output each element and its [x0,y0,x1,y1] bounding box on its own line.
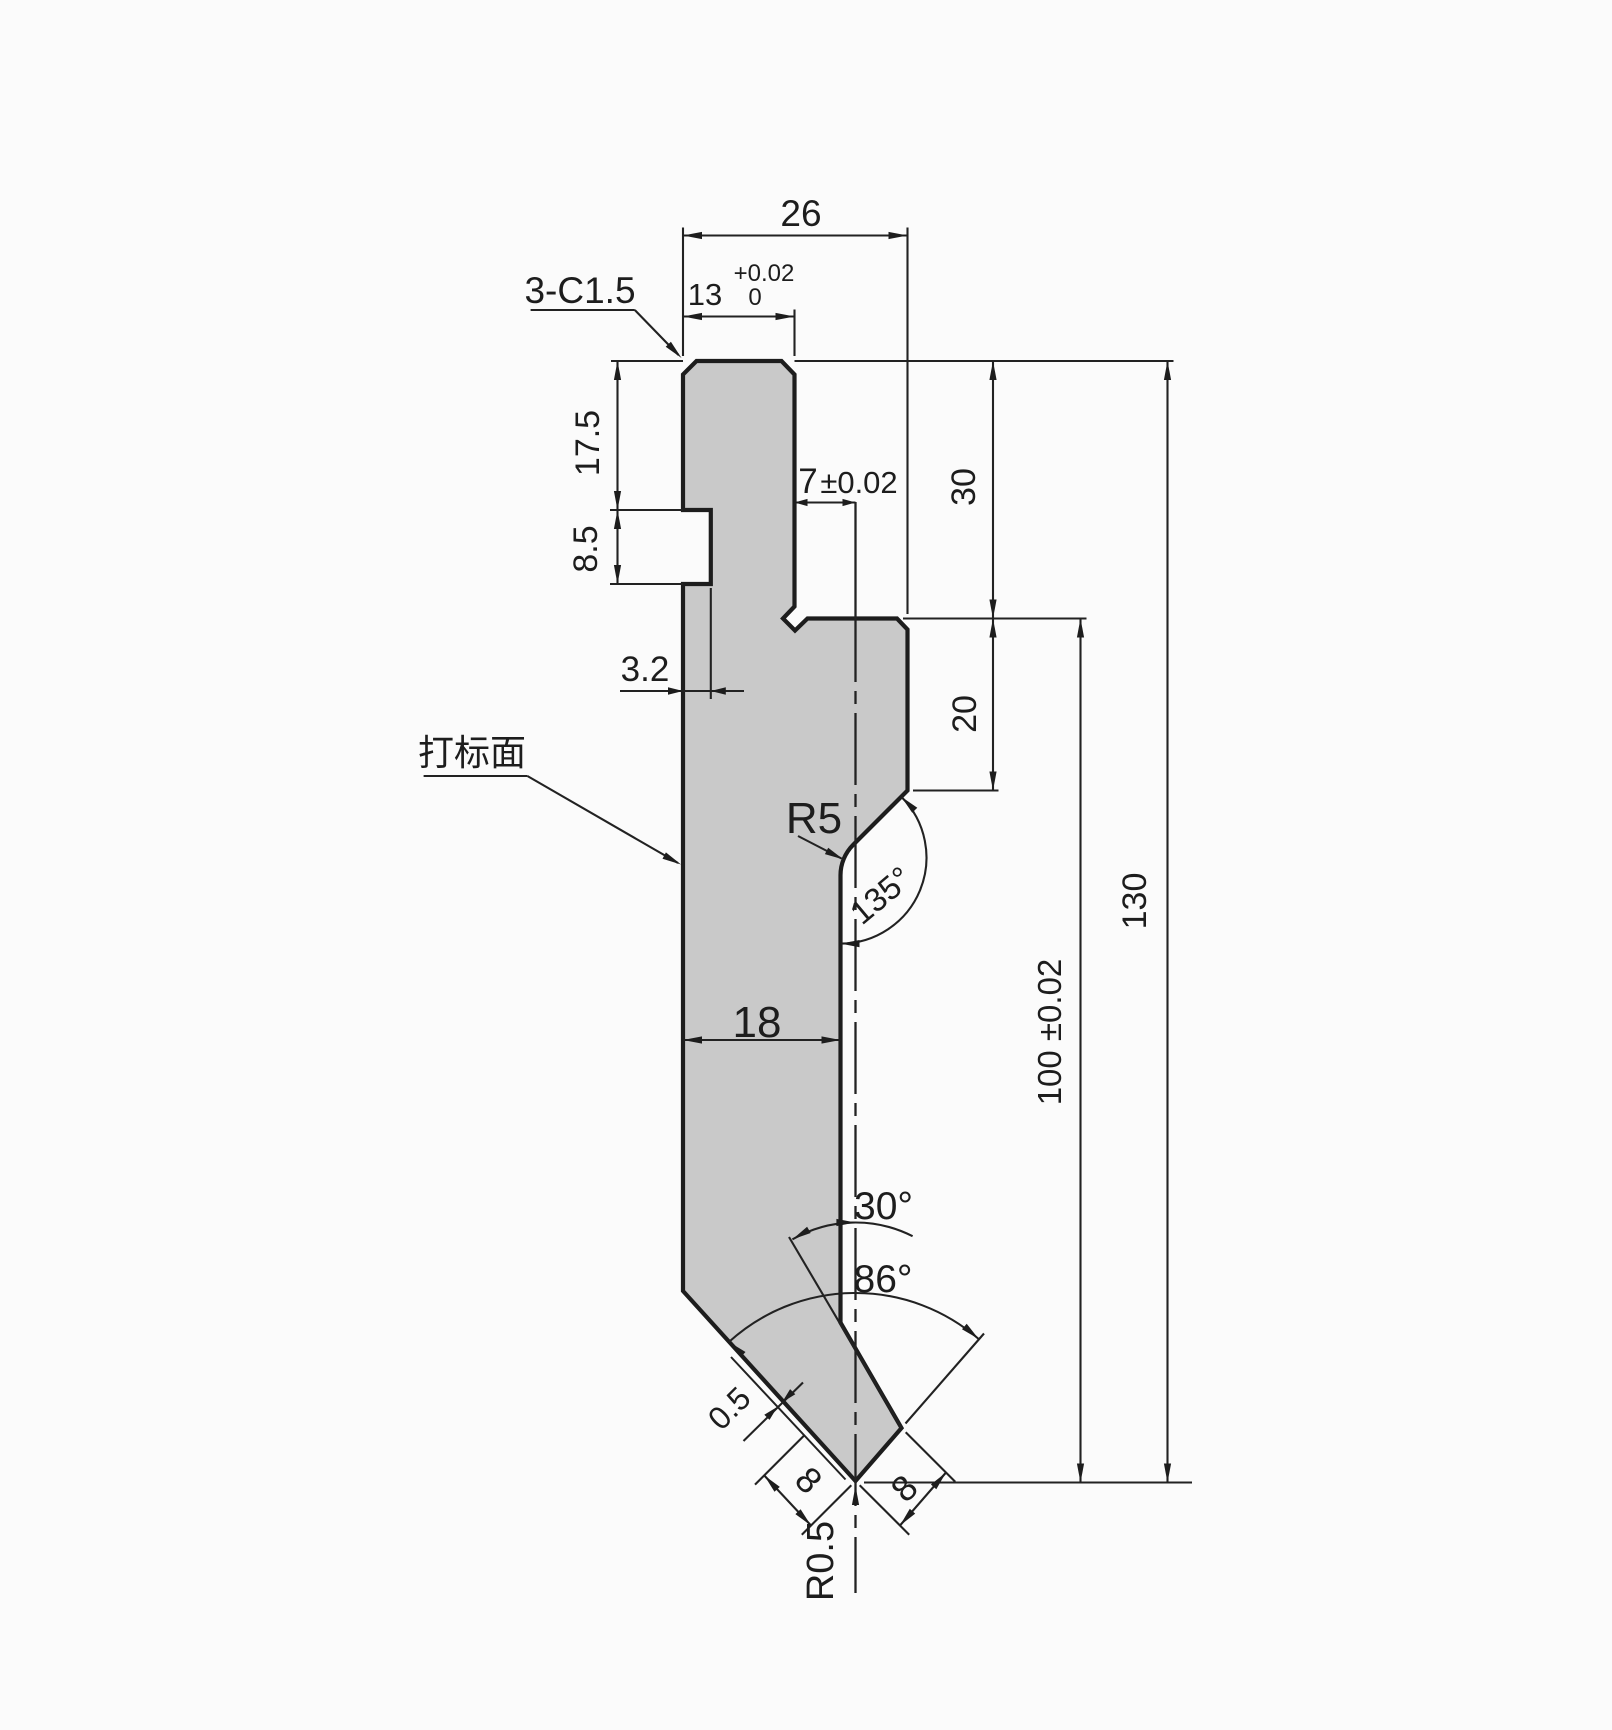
svg-text:13: 13 [688,277,722,312]
svg-text:130: 130 [1116,873,1154,930]
svg-text:17.5: 17.5 [569,410,607,476]
svg-text:8.5: 8.5 [567,525,605,572]
svg-text:30°: 30° [854,1185,913,1228]
svg-text:0: 0 [748,284,761,311]
svg-text:100 ±0.02: 100 ±0.02 [1031,959,1068,1106]
svg-text:18: 18 [733,998,782,1047]
svg-text:R5: R5 [786,794,842,843]
svg-text:30: 30 [945,468,983,506]
svg-text:打标面: 打标面 [418,732,526,773]
svg-text:26: 26 [780,193,821,234]
svg-text:+0.02: +0.02 [734,260,795,287]
svg-text:20: 20 [946,695,984,733]
svg-text:3-C1.5: 3-C1.5 [524,270,635,311]
svg-text:3.2: 3.2 [621,650,670,689]
svg-text:86°: 86° [854,1258,913,1301]
svg-text:R0.5: R0.5 [800,1521,842,1601]
svg-text:±0.02: ±0.02 [820,465,897,500]
svg-text:7: 7 [798,462,817,501]
